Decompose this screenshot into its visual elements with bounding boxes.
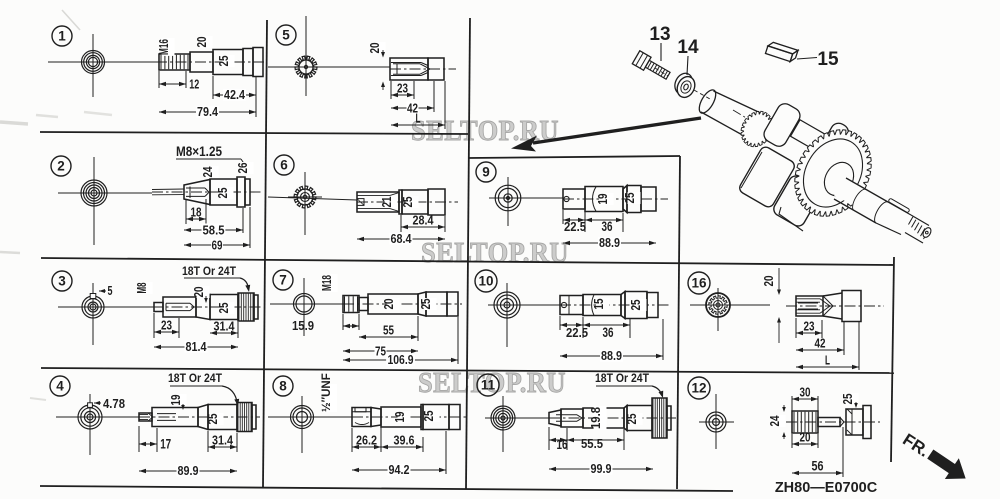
svg-text:8: 8 <box>279 379 287 394</box>
svg-text:11: 11 <box>481 378 496 393</box>
svg-text:23: 23 <box>161 318 172 333</box>
svg-text:25: 25 <box>216 303 231 314</box>
svg-text:L: L <box>825 353 830 368</box>
svg-text:22.5: 22.5 <box>564 219 586 234</box>
svg-text:½″UNF: ½″UNF <box>321 373 333 412</box>
svg-text:M8×1.25: M8×1.25 <box>176 144 222 159</box>
svg-text:42: 42 <box>815 336 826 351</box>
svg-text:36: 36 <box>603 325 614 340</box>
svg-text:28.4: 28.4 <box>413 214 434 228</box>
svg-text:89.9: 89.9 <box>178 464 199 478</box>
svg-text:19: 19 <box>595 194 610 205</box>
svg-text:12: 12 <box>189 77 199 91</box>
svg-text:20: 20 <box>194 37 209 48</box>
svg-text:M8: M8 <box>134 283 149 294</box>
svg-text:20: 20 <box>191 287 206 298</box>
svg-text:L: L <box>416 111 421 126</box>
svg-text:FR.: FR. <box>899 430 932 461</box>
svg-text:9: 9 <box>482 165 490 180</box>
svg-text:25: 25 <box>400 197 415 208</box>
svg-text:24: 24 <box>767 415 782 427</box>
svg-text:58.5: 58.5 <box>203 222 225 237</box>
svg-text:23: 23 <box>804 319 815 334</box>
svg-text:106.9: 106.9 <box>388 353 414 367</box>
svg-text:99.9: 99.9 <box>591 462 612 476</box>
svg-text:88.9: 88.9 <box>601 349 622 363</box>
svg-text:M16: M16 <box>156 39 171 55</box>
svg-text:26.2: 26.2 <box>356 434 377 448</box>
svg-text:56: 56 <box>812 458 824 474</box>
svg-text:55: 55 <box>383 323 394 338</box>
svg-text:25: 25 <box>421 411 436 422</box>
svg-text:17: 17 <box>160 437 171 452</box>
svg-text:16: 16 <box>691 276 707 291</box>
svg-text:26: 26 <box>235 163 250 174</box>
svg-text:12: 12 <box>691 381 706 396</box>
svg-text:25: 25 <box>215 188 230 199</box>
svg-text:20: 20 <box>381 299 396 310</box>
svg-text:94.2: 94.2 <box>389 463 410 477</box>
svg-text:20: 20 <box>800 430 811 445</box>
svg-text:15.9: 15.9 <box>292 318 314 333</box>
svg-text:25: 25 <box>205 414 220 425</box>
svg-text:ZH80—E0700C: ZH80—E0700C <box>775 480 878 496</box>
svg-text:1: 1 <box>58 29 66 44</box>
svg-text:15: 15 <box>591 299 606 310</box>
svg-text:SELTOP.RU: SELTOP.RU <box>421 238 569 269</box>
svg-text:42.4: 42.4 <box>224 88 245 102</box>
svg-text:22.5: 22.5 <box>566 325 588 340</box>
svg-text:25: 25 <box>622 193 637 204</box>
svg-text:2: 2 <box>57 159 65 174</box>
svg-text:7: 7 <box>279 273 287 288</box>
svg-text:30: 30 <box>800 385 811 400</box>
svg-text:24: 24 <box>200 166 215 178</box>
svg-text:18T Or 24T: 18T Or 24T <box>595 371 650 385</box>
svg-text:18T Or 24T: 18T Or 24T <box>182 264 237 278</box>
svg-text:4.78: 4.78 <box>103 396 125 411</box>
svg-text:19.8: 19.8 <box>588 407 603 429</box>
svg-text:20: 20 <box>761 276 776 287</box>
svg-text:M18: M18 <box>319 275 334 291</box>
svg-text:5: 5 <box>282 28 290 43</box>
svg-text:31.4: 31.4 <box>212 434 233 448</box>
svg-text:18: 18 <box>191 205 202 220</box>
svg-text:20: 20 <box>367 43 382 54</box>
svg-text:88.9: 88.9 <box>599 236 620 250</box>
svg-text:25: 25 <box>628 300 643 311</box>
svg-text:19: 19 <box>168 395 183 406</box>
svg-text:14: 14 <box>677 37 699 58</box>
svg-text:25: 25 <box>624 414 639 425</box>
svg-text:39.6: 39.6 <box>394 434 415 448</box>
svg-text:6: 6 <box>280 158 288 173</box>
svg-text:23: 23 <box>397 81 408 96</box>
svg-text:69: 69 <box>212 237 223 252</box>
svg-text:21: 21 <box>379 197 394 208</box>
svg-text:5: 5 <box>108 283 113 298</box>
svg-text:31.4: 31.4 <box>214 320 235 334</box>
svg-text:10: 10 <box>478 274 493 289</box>
svg-text:68.4: 68.4 <box>391 232 412 246</box>
svg-text:79.4: 79.4 <box>197 105 218 119</box>
svg-text:3: 3 <box>58 274 66 289</box>
svg-text:16: 16 <box>557 437 568 452</box>
svg-text:25: 25 <box>840 394 855 405</box>
svg-text:18T Or 24T: 18T Or 24T <box>168 371 223 385</box>
svg-text:36: 36 <box>602 219 613 234</box>
svg-text:15: 15 <box>817 49 839 70</box>
svg-text:55.5: 55.5 <box>581 436 603 451</box>
svg-text:4: 4 <box>56 379 64 394</box>
svg-text:81.4: 81.4 <box>186 340 207 354</box>
svg-text:19: 19 <box>392 412 407 423</box>
svg-text:75: 75 <box>375 343 386 358</box>
svg-text:25: 25 <box>418 299 433 310</box>
svg-text:25: 25 <box>216 56 231 67</box>
svg-text:13: 13 <box>649 24 670 45</box>
